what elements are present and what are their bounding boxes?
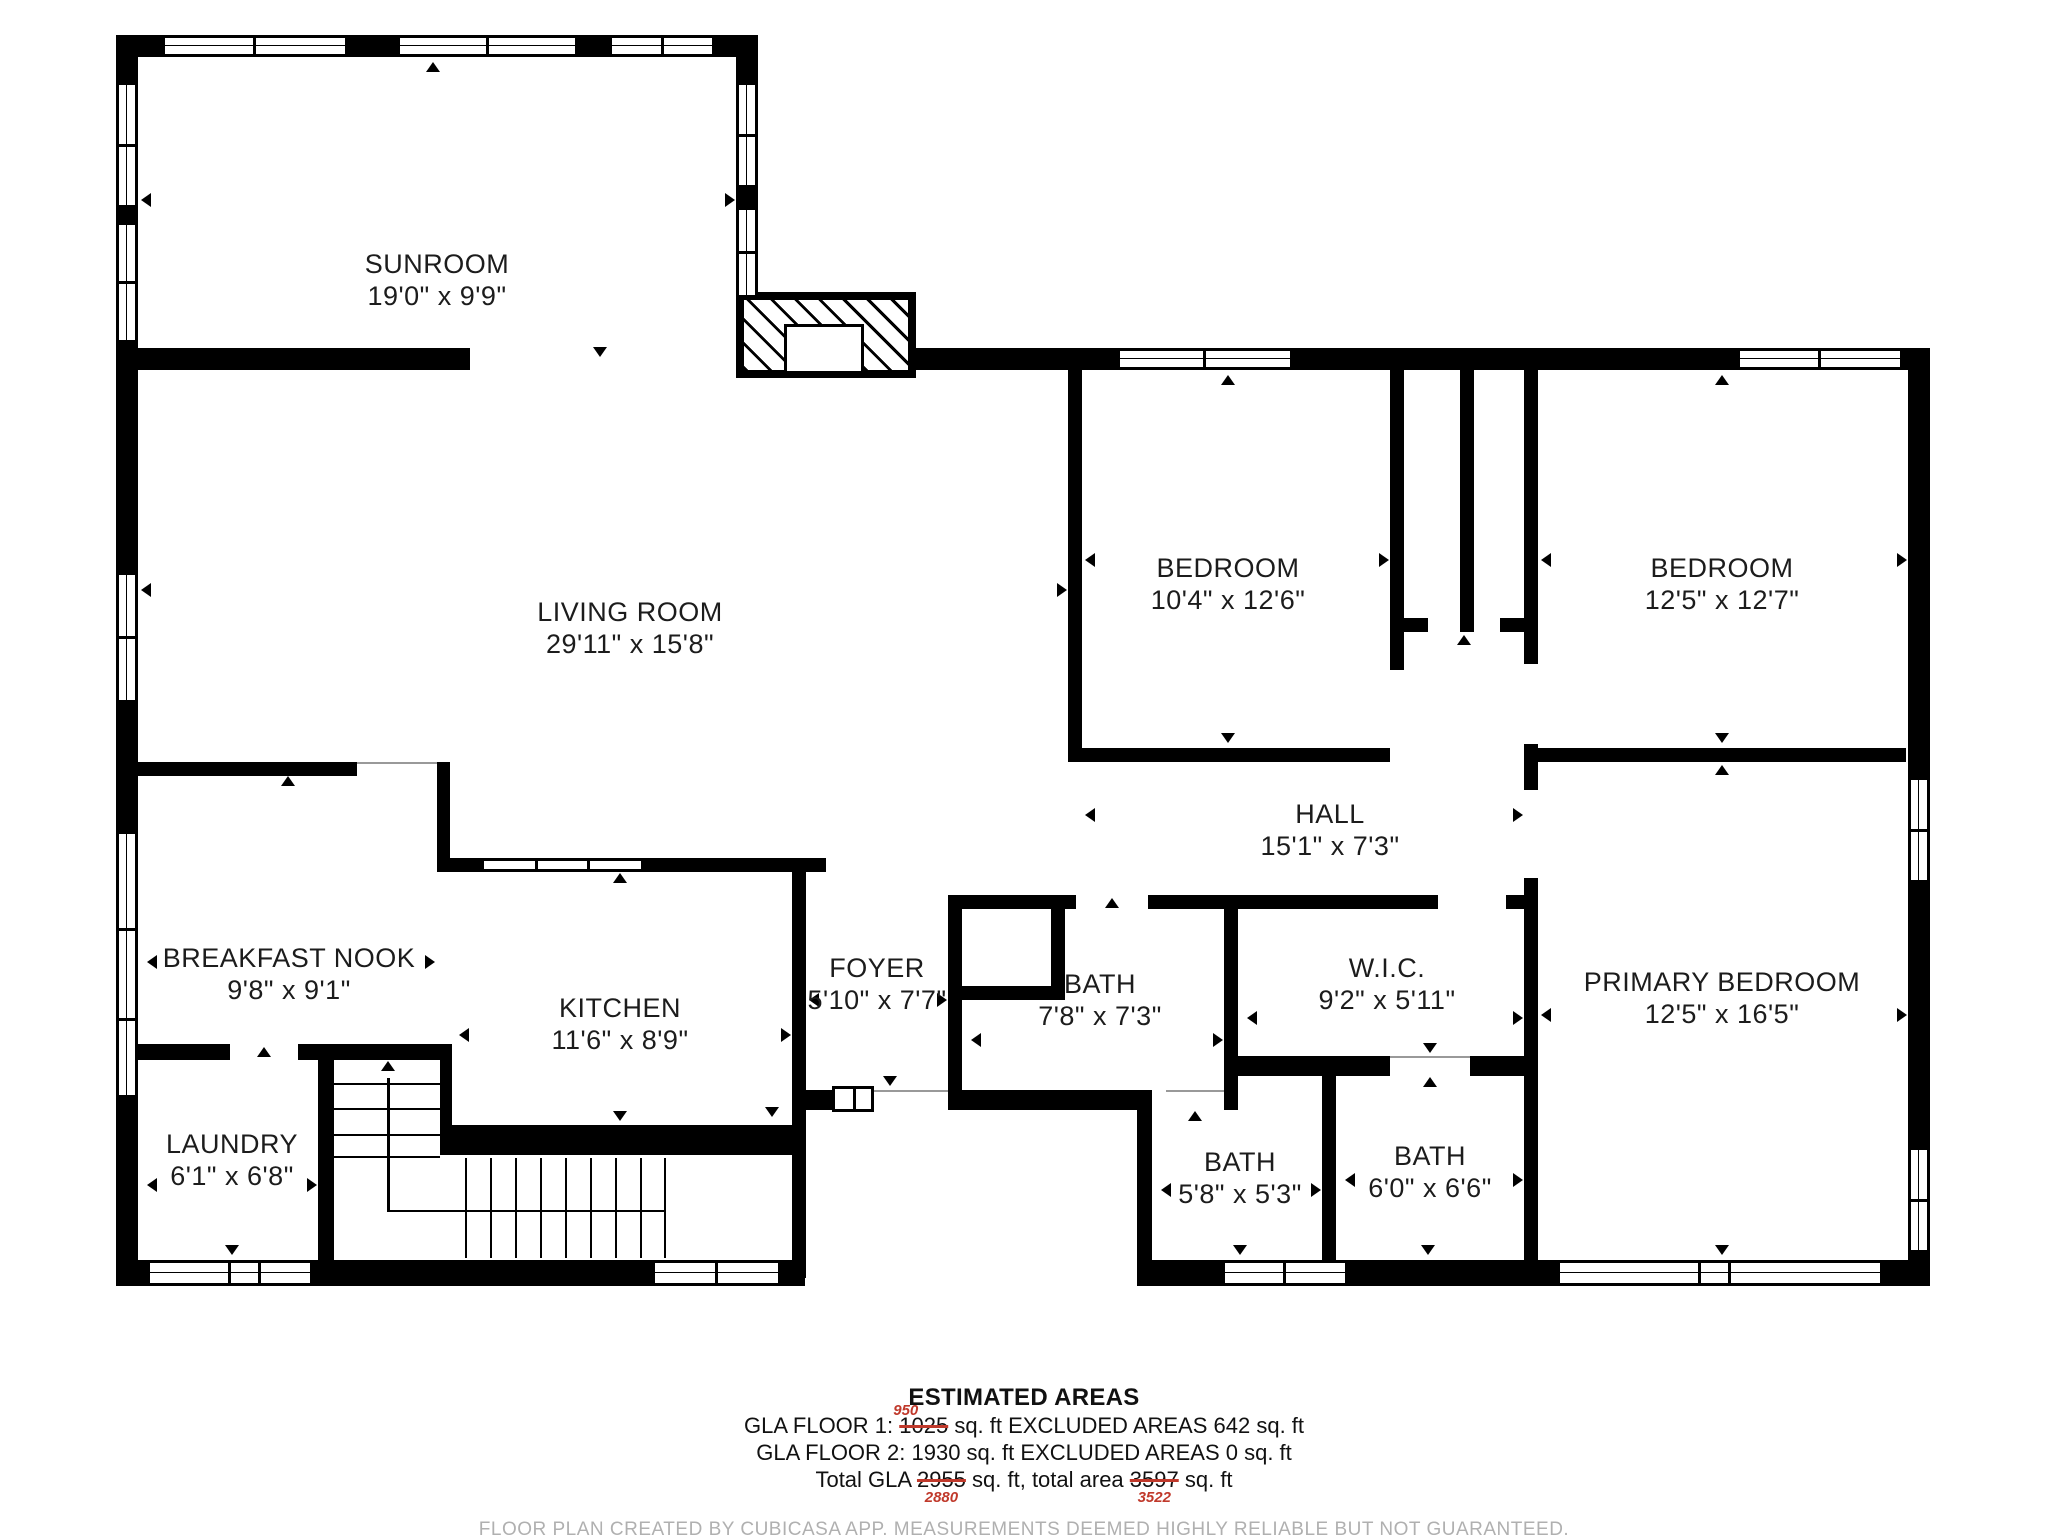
dimension-arrow	[1541, 553, 1551, 567]
wall	[318, 1044, 334, 1260]
room-dims: 6'0" x 6'6"	[1368, 1172, 1492, 1204]
room-dims: 9'2" x 5'11"	[1318, 984, 1455, 1016]
dimension-arrow	[765, 1107, 779, 1117]
wall	[138, 1044, 230, 1060]
total-area-value: 35973522	[1130, 1466, 1179, 1493]
room-dims: 7'8" x 7'3"	[1038, 1000, 1162, 1032]
dimension-arrow	[1085, 553, 1095, 567]
dimension-arrow	[147, 1178, 157, 1192]
wall	[437, 762, 450, 872]
wall	[450, 858, 484, 872]
dimension-arrow	[459, 1028, 469, 1042]
dimension-arrow	[1311, 1183, 1321, 1197]
disclaimer: FLOOR PLAN CREATED BY CUBICASA APP. MEAS…	[0, 1519, 2048, 1536]
gla-floor1-value: 9501025	[899, 1412, 948, 1439]
stair-tread	[590, 1158, 592, 1258]
room-label-wic: W.I.C.9'2" x 5'11"	[1318, 952, 1455, 1016]
front-door-opening	[874, 1090, 948, 1092]
window	[612, 35, 712, 57]
wall	[1500, 618, 1524, 632]
wall	[440, 1044, 452, 1125]
wall	[1404, 618, 1428, 632]
stair-tread	[565, 1158, 567, 1258]
dimension-arrow	[1247, 1011, 1257, 1025]
gla-floor-1: GLA FLOOR 1: 9501025 sq. ft EXCLUDED ARE…	[0, 1412, 2048, 1439]
dimension-arrow	[1379, 553, 1389, 567]
wall	[1238, 1056, 1390, 1076]
wall	[1148, 895, 1438, 909]
room-name: W.I.C.	[1318, 952, 1455, 984]
dimension-arrow	[281, 776, 295, 786]
window	[400, 35, 575, 57]
interior-window	[484, 858, 641, 872]
dimension-arrow	[141, 583, 151, 597]
wall	[1506, 895, 1524, 909]
wall	[1137, 1090, 1152, 1278]
wall	[1322, 1056, 1336, 1260]
window	[1225, 1260, 1345, 1286]
room-label-bath-hall: BATH6'0" x 6'6"	[1368, 1140, 1492, 1204]
door-opening	[1166, 1090, 1224, 1092]
wall	[1068, 370, 1082, 762]
room-label-living-room: LIVING ROOM29'11" x 15'8"	[537, 596, 723, 660]
window	[1908, 1150, 1930, 1250]
wall	[1524, 878, 1538, 1260]
gla-total-value: 29552880	[917, 1466, 966, 1493]
stair-tread	[615, 1158, 617, 1258]
dimension-arrow	[147, 955, 157, 969]
dimension-arrow	[1715, 733, 1729, 743]
floor-plan-page: SUNROOM19'0" x 9'9" LIVING ROOM29'11" x …	[0, 0, 2048, 1536]
stair-landing-line	[388, 1210, 666, 1212]
wall	[440, 1125, 806, 1155]
dimension-arrow	[1513, 1173, 1523, 1187]
dimension-arrow	[1085, 808, 1095, 822]
wall	[1068, 748, 1390, 762]
room-dims: 19'0" x 9'9"	[365, 280, 510, 312]
dimension-arrow	[225, 1245, 239, 1255]
dimension-arrow	[1057, 583, 1067, 597]
dimension-arrow	[781, 1028, 791, 1042]
total-area-corrected: 3522	[1138, 1484, 1171, 1511]
door-arrow	[1105, 898, 1119, 908]
wall	[806, 1090, 832, 1110]
wall	[792, 872, 806, 1278]
dimension-arrow	[1233, 1245, 1247, 1255]
room-label-breakfast-nook: BREAKFAST NOOK9'8" x 9'1"	[163, 942, 416, 1006]
window	[1120, 348, 1290, 370]
dimension-arrow	[613, 873, 627, 883]
floor-plan: SUNROOM19'0" x 9'9" LIVING ROOM29'11" x …	[0, 0, 2048, 1286]
door-arrow	[257, 1047, 271, 1057]
room-label-kitchen: KITCHEN11'6" x 8'9"	[551, 992, 688, 1056]
front-door-threshold	[832, 1086, 874, 1112]
dimension-arrow	[1513, 1011, 1523, 1025]
dimension-arrow	[1715, 765, 1729, 775]
window	[736, 210, 758, 295]
room-dims: 10'4" x 12'6"	[1151, 584, 1306, 616]
dimension-arrow	[425, 955, 435, 969]
dimension-arrow	[426, 62, 440, 72]
wall	[1460, 370, 1474, 632]
wall	[1390, 370, 1404, 670]
window	[1560, 1260, 1880, 1286]
wall	[334, 1044, 452, 1060]
window	[1740, 348, 1900, 370]
wall	[138, 762, 357, 776]
gla-total-corrected: 2880	[925, 1484, 958, 1511]
room-label-bath-small: BATH5'8" x 5'3"	[1178, 1146, 1302, 1210]
room-name: LAUNDRY	[166, 1128, 298, 1160]
room-name: BEDROOM	[1645, 552, 1800, 584]
window	[150, 1260, 310, 1286]
room-label-primary-bedroom: PRIMARY BEDROOM12'5" x 16'5"	[1584, 966, 1861, 1030]
room-name: FOYER	[807, 952, 946, 984]
wall	[1224, 895, 1238, 1110]
dimension-arrow	[141, 193, 151, 207]
room-name: HALL	[1260, 798, 1399, 830]
room-dims: 11'6" x 8'9"	[551, 1024, 688, 1056]
dimension-arrow	[1715, 1245, 1729, 1255]
gla-floor-2: GLA FLOOR 2: 1930 sq. ft EXCLUDED AREAS …	[0, 1439, 2048, 1466]
wall	[138, 348, 470, 370]
dimension-arrow	[1541, 1008, 1551, 1022]
dimension-arrow	[1161, 1183, 1171, 1197]
door-arrow	[593, 347, 607, 357]
stair-tread	[465, 1158, 467, 1258]
dimension-arrow	[883, 1076, 897, 1086]
dimension-arrow	[1345, 1173, 1355, 1187]
dimension-arrow	[1715, 375, 1729, 385]
room-name: BATH	[1368, 1140, 1492, 1172]
room-name: LIVING ROOM	[537, 596, 723, 628]
wall	[1524, 748, 1906, 762]
room-dims: 6'1" x 6'8"	[166, 1160, 298, 1192]
window	[165, 35, 345, 57]
room-dims: 5'10" x 7'7"	[807, 984, 946, 1016]
window	[655, 1260, 778, 1286]
room-dims: 5'8" x 5'3"	[1178, 1178, 1302, 1210]
wall	[1524, 370, 1538, 664]
door-arrow	[1423, 1077, 1437, 1087]
dimension-arrow	[1221, 733, 1235, 743]
room-name: BEDROOM	[1151, 552, 1306, 584]
wall	[948, 895, 962, 1110]
stair-tread	[490, 1158, 492, 1258]
stair-direction-line	[387, 1078, 390, 1212]
room-dims: 12'5" x 12'7"	[1645, 584, 1800, 616]
door-arrow	[1457, 635, 1471, 645]
room-name: KITCHEN	[551, 992, 688, 1024]
dimension-arrow	[1421, 1245, 1435, 1255]
window	[736, 85, 758, 185]
window	[116, 85, 138, 205]
room-dims: 12'5" x 16'5"	[1584, 998, 1861, 1030]
gla-total: Total GLA 29552880 sq. ft, total area 35…	[0, 1466, 2048, 1493]
dimension-arrow	[1897, 1008, 1907, 1022]
dimension-arrow	[307, 1178, 317, 1192]
room-label-bath-main: BATH7'8" x 7'3"	[1038, 968, 1162, 1032]
stair-tread	[540, 1158, 542, 1258]
dimension-arrow	[725, 193, 735, 207]
room-dims: 15'1" x 7'3"	[1260, 830, 1399, 862]
wall	[948, 895, 1076, 909]
dimension-arrow	[1221, 375, 1235, 385]
door-arrow	[1188, 1111, 1202, 1121]
window	[116, 834, 138, 1095]
room-name: SUNROOM	[365, 248, 510, 280]
room-label-bedroom-1: BEDROOM10'4" x 12'6"	[1151, 552, 1306, 616]
window	[116, 575, 138, 700]
stair-tread	[640, 1158, 642, 1258]
estimated-areas: ESTIMATED AREAS GLA FLOOR 1: 9501025 sq.…	[0, 1384, 2048, 1536]
room-dims: 9'8" x 9'1"	[163, 974, 416, 1006]
room-label-bedroom-2: BEDROOM12'5" x 12'7"	[1645, 552, 1800, 616]
room-name: BATH	[1178, 1146, 1302, 1178]
estimated-areas-title: ESTIMATED AREAS	[0, 1384, 2048, 1412]
gla-floor1-corrected: 950	[893, 1397, 918, 1424]
dimension-arrow	[1897, 553, 1907, 567]
door-opening	[357, 762, 437, 764]
stair-up-arrow	[381, 1061, 395, 1071]
room-label-laundry: LAUNDRY6'1" x 6'8"	[166, 1128, 298, 1192]
room-label-hall: HALL15'1" x 7'3"	[1260, 798, 1399, 862]
dimension-arrow	[613, 1111, 627, 1121]
wall	[1470, 1056, 1524, 1076]
room-label-sunroom: SUNROOM19'0" x 9'9"	[365, 248, 510, 312]
room-label-foyer: FOYER5'10" x 7'7"	[807, 952, 946, 1016]
dimension-arrow	[1213, 1033, 1223, 1047]
room-name: BATH	[1038, 968, 1162, 1000]
wall	[641, 858, 826, 872]
room-name: PRIMARY BEDROOM	[1584, 966, 1861, 998]
room-name: BREAKFAST NOOK	[163, 942, 416, 974]
room-dims: 29'11" x 15'8"	[537, 628, 723, 660]
stair-tread	[664, 1158, 666, 1258]
wall	[948, 1090, 1152, 1110]
door-opening	[1390, 1056, 1470, 1058]
dimension-arrow	[971, 1033, 981, 1047]
fireplace-firebox	[784, 324, 864, 374]
dimension-arrow	[1513, 808, 1523, 822]
door-arrow	[1423, 1043, 1437, 1053]
stair-tread	[515, 1158, 517, 1258]
window	[1908, 780, 1930, 880]
window	[116, 225, 138, 340]
